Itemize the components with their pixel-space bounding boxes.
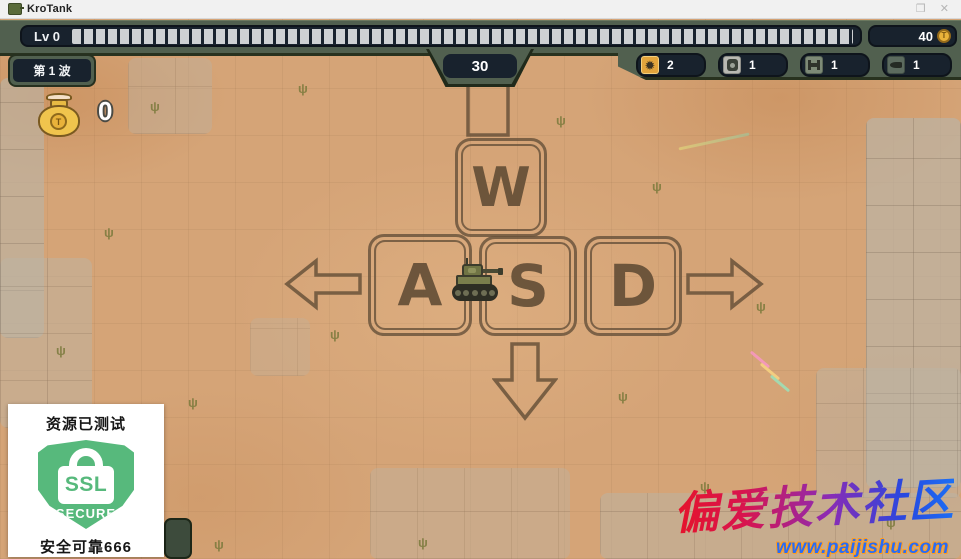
grass-tuft: ψ [618, 390, 628, 403]
key-w-letter: W [471, 156, 531, 219]
mine-splat-icon: ✹ [641, 56, 659, 74]
player-tank[interactable] [452, 258, 504, 308]
shell-icon [887, 56, 905, 74]
coin-count: 40 [919, 29, 933, 44]
grass-tuft: ψ [418, 536, 428, 549]
key-d-letter: D [609, 252, 657, 320]
barricade-icon [805, 56, 823, 74]
item-count: 1 [831, 58, 838, 72]
grass-tuft: ψ [330, 328, 340, 341]
light-streak [678, 133, 749, 151]
item-slot-barrel[interactable]: 1 [718, 53, 788, 77]
level-progress-bar: Lv 0 [20, 25, 862, 47]
tank-tread [452, 284, 498, 301]
grass-tuft: ψ [104, 226, 114, 239]
wave-panel: 第 1 波 [8, 54, 96, 87]
wave-timer-panel: 30 [426, 49, 534, 87]
stone-patch [250, 318, 310, 376]
money-count: 0 [98, 96, 112, 127]
stone-patch [600, 493, 961, 559]
coin-icon: T [937, 29, 951, 43]
grass-tuft: ψ [56, 344, 66, 357]
sparkle-streak [770, 375, 790, 393]
ssl-top-text: 资源已测试 [46, 413, 126, 434]
ssl-shield-icon: SSL SECURE [38, 440, 134, 529]
maximize-icon[interactable]: ❒ [916, 0, 926, 18]
grass-tuft: ψ [556, 114, 566, 127]
stone-patch [816, 368, 961, 498]
level-progress-segments [72, 29, 853, 44]
item-count: 1 [749, 58, 756, 72]
up-arrow-stem [464, 87, 512, 139]
item-slot-bar: ✹ 2 1 1 1 [618, 50, 961, 80]
close-icon[interactable]: ✕ [940, 0, 949, 18]
grass-tuft: ψ [188, 396, 198, 409]
right-arrow-icon [686, 254, 764, 314]
titlebar: KroTank ❒ ✕ [0, 0, 961, 19]
window-title: KroTank [27, 3, 72, 15]
ssl-bottom-text: 安全可靠666 [40, 536, 132, 557]
stone-patch [370, 468, 570, 559]
grass-tuft: ψ [150, 100, 160, 113]
item-count: 2 [667, 58, 674, 72]
key-w: W [455, 138, 547, 237]
stone-patch [128, 58, 212, 134]
item-slot-shell[interactable]: 1 [882, 53, 952, 77]
wave-label: 第 1 波 [13, 59, 91, 82]
barrel-mine-icon [723, 56, 741, 74]
ssl-badge: 资源已测试 SSL SECURE 安全可靠666 [8, 404, 164, 557]
key-a-letter: A [398, 251, 443, 319]
item-slot-mine[interactable]: ✹ 2 [636, 53, 706, 77]
grass-tuft: ψ [652, 180, 662, 193]
item-count: 1 [913, 58, 920, 72]
lock-body: SSL [58, 466, 114, 504]
coin-counter: 40 T [868, 25, 957, 47]
key-s-letter: S [507, 252, 549, 320]
left-arrow-icon [284, 254, 362, 314]
app-tank-icon [8, 3, 22, 15]
level-label: Lv 0 [22, 29, 72, 44]
item-slot-barricade[interactable]: 1 [800, 53, 870, 77]
grass-tuft: ψ [886, 516, 896, 529]
hidden-button [164, 518, 192, 559]
ssl-text: SSL [65, 473, 107, 497]
money-bag-icon: T [38, 93, 80, 137]
stone-patch [0, 258, 92, 428]
down-arrow-icon [492, 342, 558, 422]
wave-timer-value: 30 [443, 54, 517, 78]
secure-text: SECURE [38, 506, 134, 521]
grass-tuft: ψ [214, 538, 224, 551]
key-d: D [584, 236, 682, 336]
grass-tuft: ψ [298, 82, 308, 95]
grass-tuft: ψ [700, 480, 710, 493]
game-window: KroTank ❒ ✕ ψ ψ ψ ψ ψ ψ ψ ψ ψ ψ ψ ψ ψ ψ [0, 0, 961, 559]
